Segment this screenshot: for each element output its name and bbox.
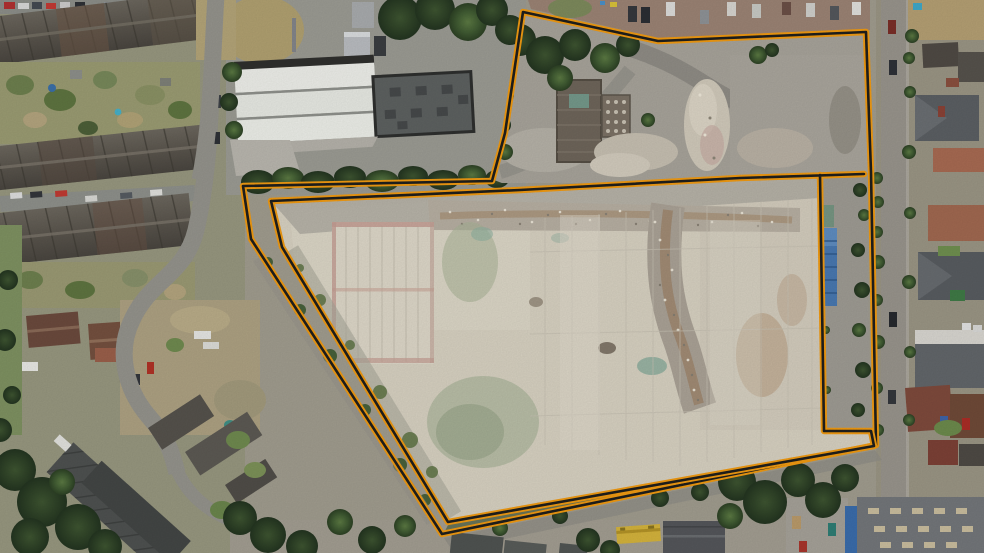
aerial-photo-canvas <box>0 0 984 553</box>
photo-grain <box>0 0 984 553</box>
aerial-photo <box>0 0 984 553</box>
